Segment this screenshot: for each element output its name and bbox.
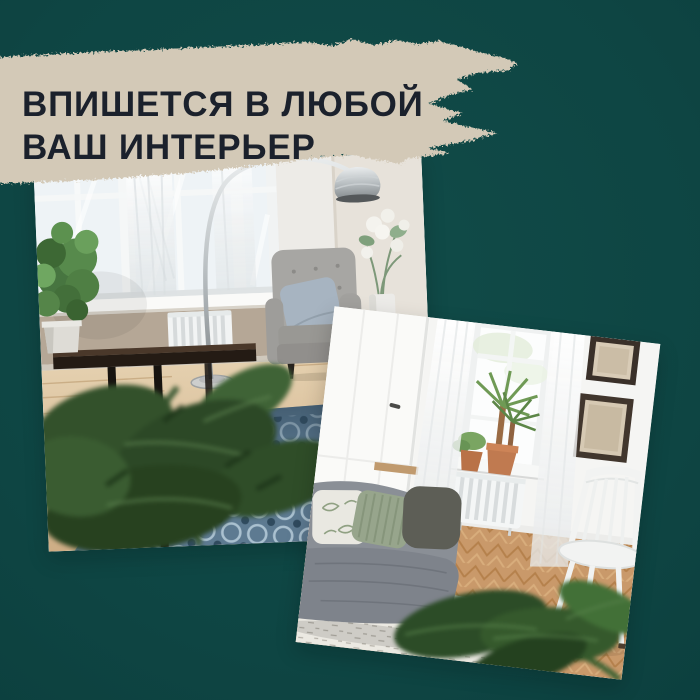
white-living-room-scene [296, 306, 661, 679]
picture-frame-bottom [573, 393, 634, 463]
charcoal-armrest-cushion [401, 486, 462, 551]
headline: ВПИШЕТСЯ В ЛЮБОЙ ВАШ ИНТЕРЬЕР [22, 83, 424, 169]
headline-line-2: ВАШ ИНТЕРЬЕР [22, 126, 424, 169]
photo-white-living-room [296, 306, 661, 679]
social-post-canvas: ВПИШЕТСЯ В ЛЮБОЙ ВАШ ИНТЕРЬЕР [0, 0, 700, 700]
headline-line-1: ВПИШЕТСЯ В ЛЮБОЙ [22, 83, 424, 126]
picture-frame-top [586, 336, 641, 385]
headline-banner: ВПИШЕТСЯ В ЛЮБОЙ ВАШ ИНТЕРЬЕР [0, 0, 560, 210]
